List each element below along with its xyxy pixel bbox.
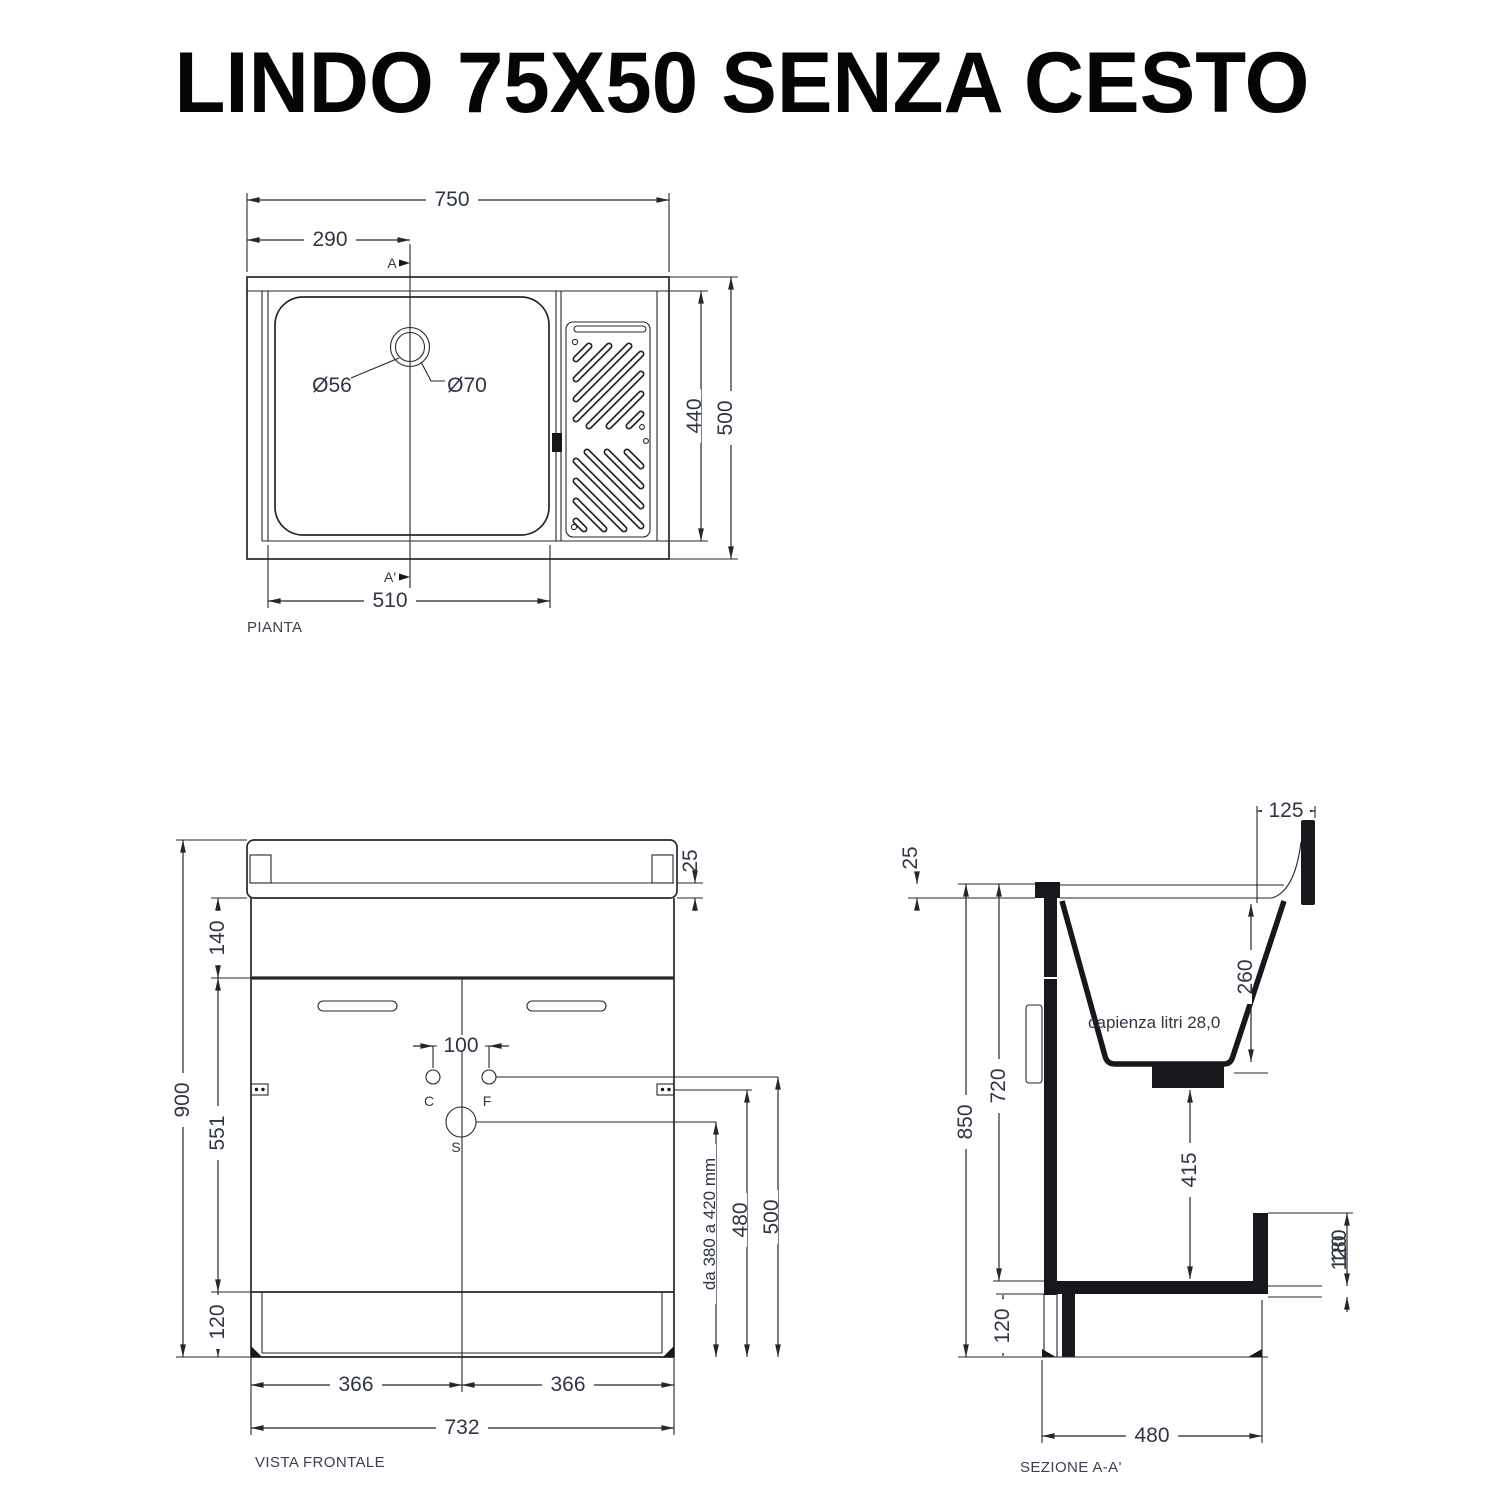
dim-290: 290 [312,228,347,251]
dim-850: 850 [954,1104,977,1139]
dim-25-sez: 25 [899,846,922,869]
dim-510: 510 [372,589,407,612]
rear-step [1253,1213,1268,1294]
door-handle-left [318,1001,397,1011]
dim-125: 125 [1268,799,1303,822]
section-arrow-top [399,260,410,267]
pianta-dimensions: 750 290 510 440 500 [247,188,738,612]
marker-cold: C [424,1093,434,1109]
cabinet-front [251,898,674,1357]
dim-551: 551 [206,1115,229,1150]
drainboard-slot [574,326,646,332]
pianta-label: PIANTA [247,619,302,636]
drain-flange [1152,1064,1224,1088]
section-marker-a: A [387,255,397,271]
drawing-page: LINDO 75X50 SENZA CESTO [0,0,1500,1500]
pianta-view: A A' Ø56 Ø70 750 290 510 [247,188,738,636]
dim-480-sez: 480 [1134,1424,1169,1447]
drain-hole: Ø56 Ø70 [312,328,487,398]
dim-25-front: 25 [679,849,702,872]
page-title: LINDO 75X50 SENZA CESTO [175,35,1310,131]
dim-drain-range: da 380 a 420 mm [700,1158,719,1290]
dim-440: 440 [683,398,706,433]
dim-500: 500 [714,400,737,435]
dim-260: 260 [1234,959,1257,994]
section-marker-a1: A' [384,569,396,585]
capacity-note: capienza litri 28,0 [1088,1013,1220,1032]
section-body: capienza litri 28,0 [958,820,1322,1357]
dim-366-left: 366 [338,1373,373,1396]
section-cut-line: A A' [384,244,410,588]
hinge-left [251,1084,268,1095]
dim-720: 720 [987,1068,1010,1103]
hinge-right [657,1084,674,1095]
frontale-dimensions: 900 140 551 120 [171,840,783,1439]
overflow-clip [552,433,562,452]
dim-750: 750 [434,188,469,211]
dim-drain-outer: Ø70 [447,374,487,397]
frontale-view: C F S 100 900 [171,840,783,1471]
foot-mark-left [251,1346,262,1357]
frontale-label: VISTA FRONTALE [255,1454,385,1471]
floor-mark-right [1248,1349,1262,1357]
sezione-view: capienza litri 28,0 850 720 [899,799,1353,1476]
marker-hot: F [483,1093,492,1109]
drainboard [566,322,650,537]
marker-drain: S [451,1139,460,1155]
sezione-label: SEZIONE A-A' [1020,1459,1122,1476]
connection-points: C F S 100 [413,1034,778,1155]
dim-366-right: 366 [550,1373,585,1396]
dim-480-front: 480 [729,1202,752,1237]
drainboard-ribs-upper [576,346,641,426]
dim-732: 732 [444,1416,479,1439]
dim-140: 140 [206,920,229,955]
dim-415: 415 [1178,1152,1201,1187]
foot-mark-right [663,1346,674,1357]
handle-profile [1026,1005,1042,1083]
dim-120-front: 120 [206,1304,229,1339]
plinth-section [1062,1294,1075,1357]
sezione-dimensions: 850 720 25 125 260 [899,799,1353,1447]
bottom-panel [1044,1281,1266,1294]
technical-drawing: LINDO 75X50 SENZA CESTO [0,0,1500,1500]
dim-120-plinth: 120 [991,1308,1014,1343]
washtop-outline [247,277,669,559]
dim-500-front: 500 [760,1199,783,1234]
dim-900: 900 [171,1082,194,1117]
drainboard-ribs-lower [576,452,641,529]
rear-upstand [1301,820,1315,905]
dim-drain-inner: Ø56 [312,374,352,397]
dim-100: 100 [443,1034,478,1057]
dim-120-step: 120 [1328,1235,1351,1270]
basin-outline [275,291,562,541]
front-panel-section [1044,885,1057,1295]
washtop-front [247,840,677,898]
door-handle-right [527,1001,606,1011]
section-arrow-bottom [399,574,410,581]
